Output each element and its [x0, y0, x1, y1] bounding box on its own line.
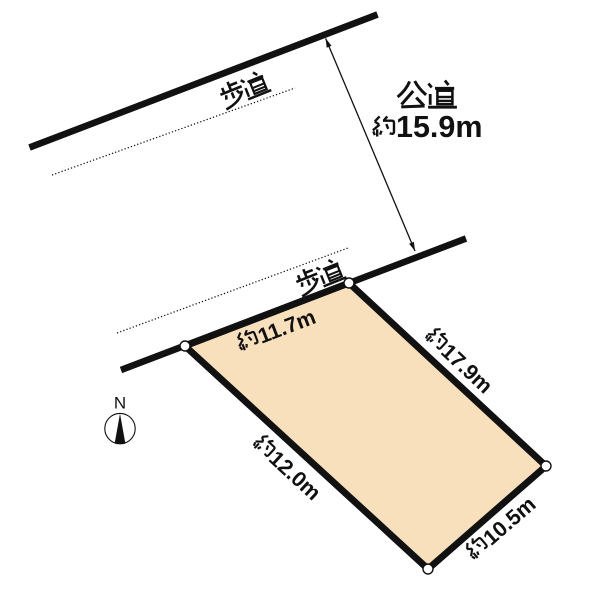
svg-text:N: N	[114, 394, 126, 413]
svg-text:15.9m: 15.9m	[396, 110, 482, 144]
